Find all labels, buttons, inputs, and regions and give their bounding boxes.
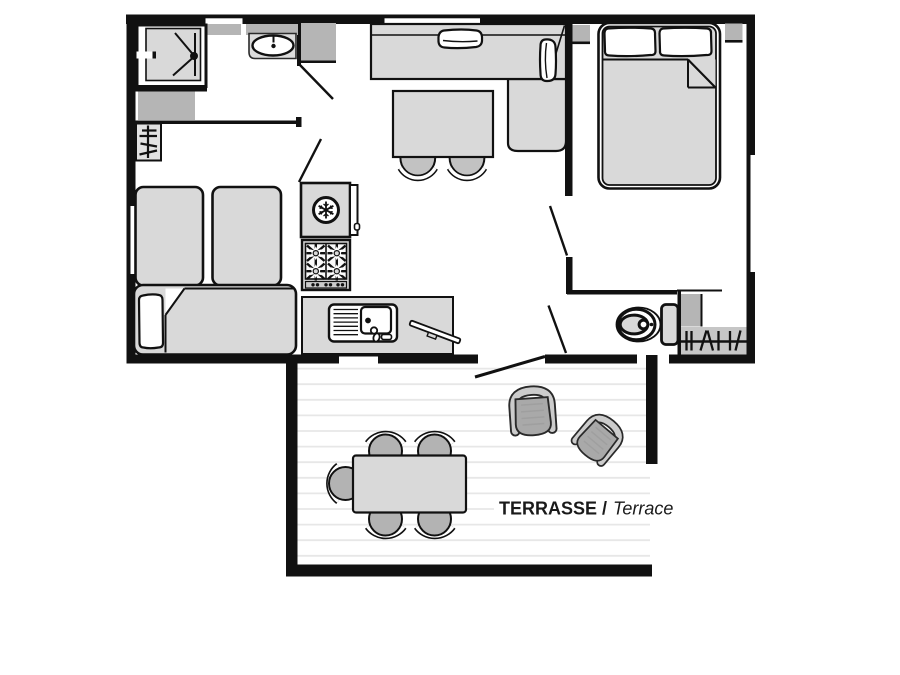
svg-text:TERRASSE /: TERRASSE / — [499, 499, 607, 519]
svg-text:Terrace: Terrace — [613, 499, 673, 519]
